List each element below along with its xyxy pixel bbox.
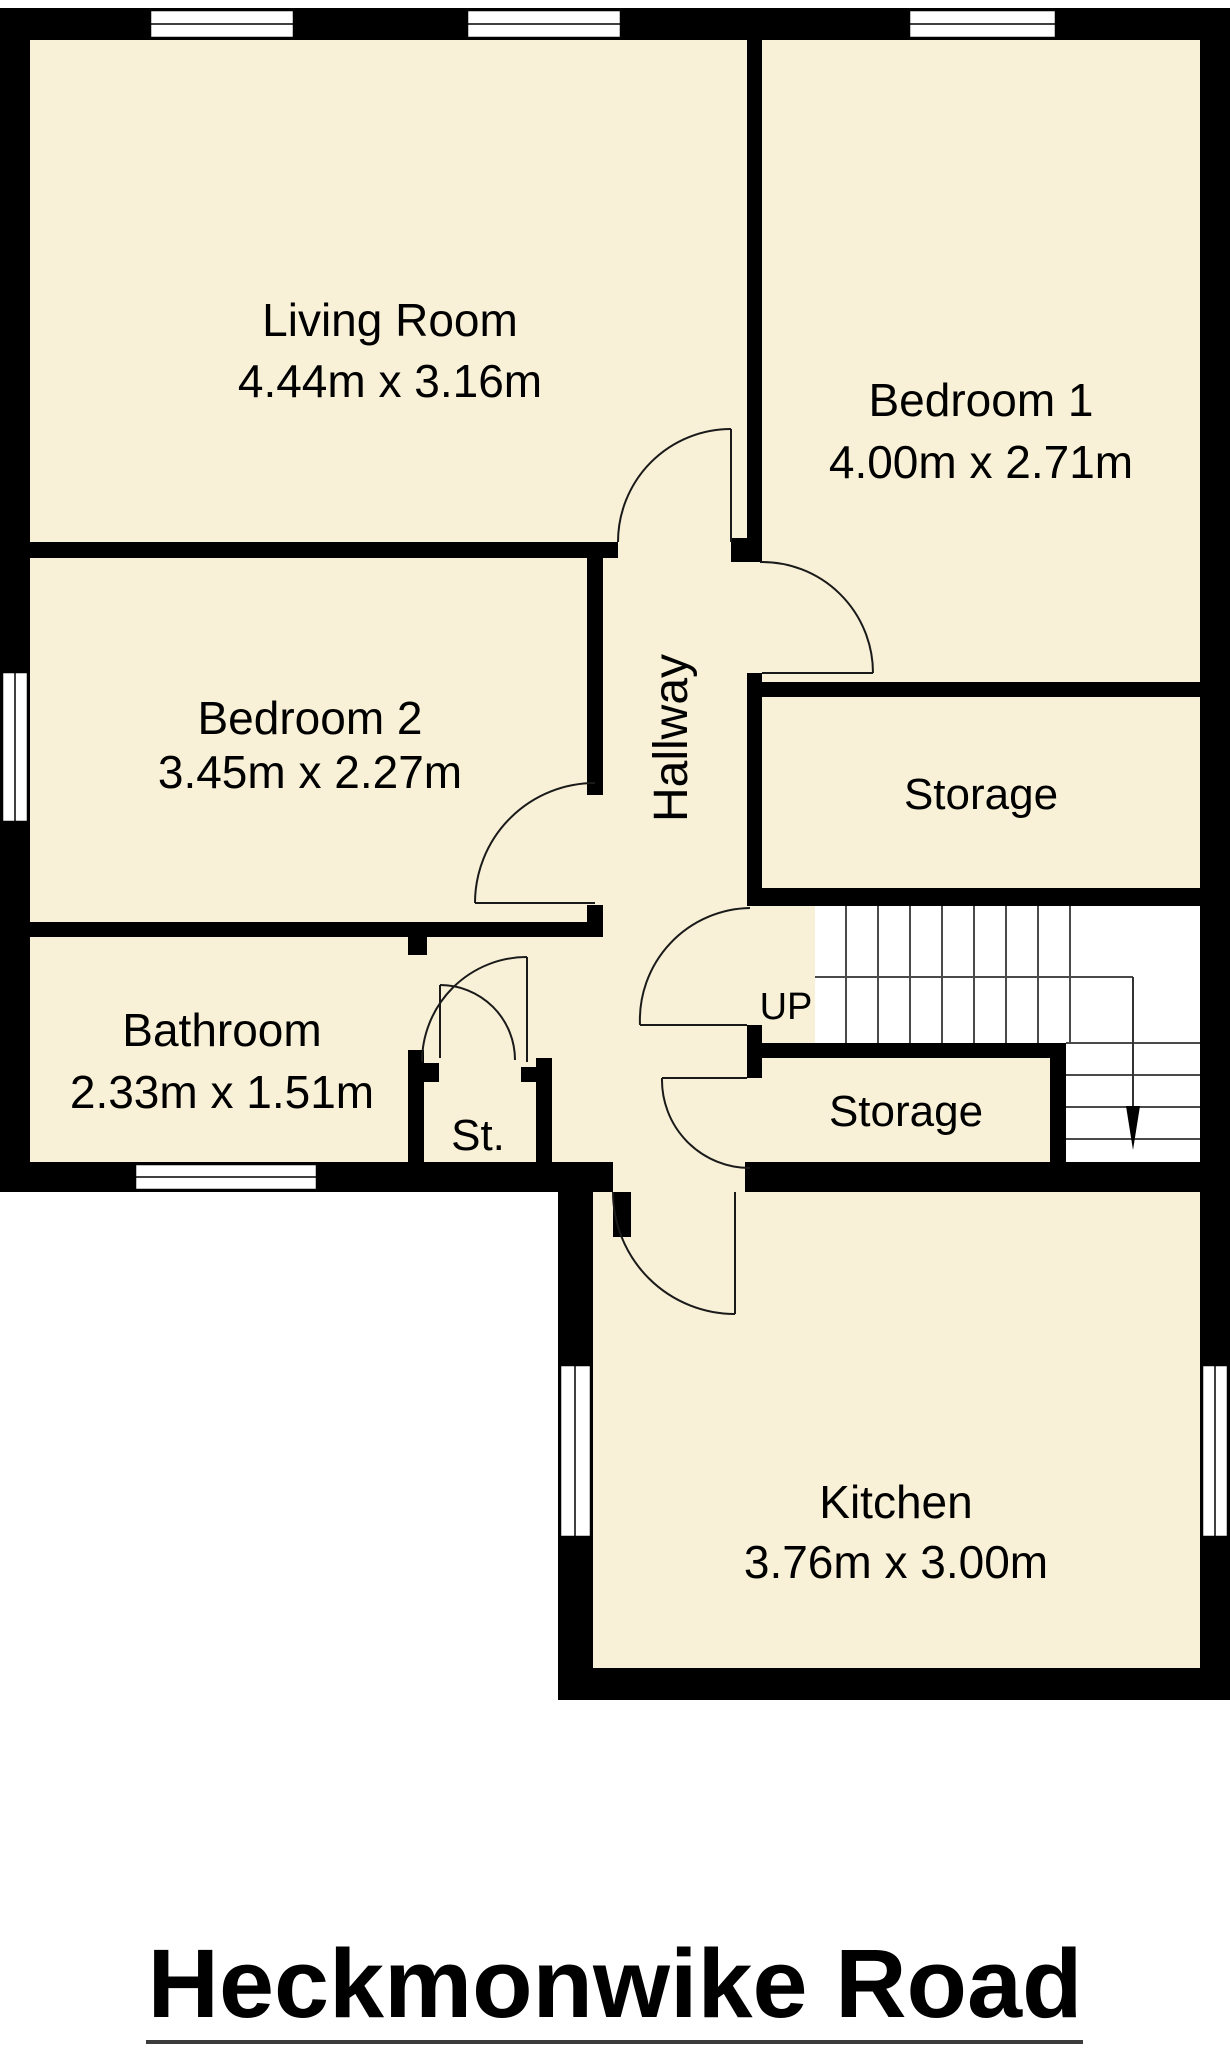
- bedroom-1-name: Bedroom 1: [868, 374, 1093, 426]
- hallway-name: Hallway: [645, 654, 698, 822]
- storage-upper-name: Storage: [904, 770, 1058, 819]
- window: [2, 672, 28, 822]
- floorplan-page: Living Room 4.44m x 3.16m Bedroom 1 4.00…: [0, 0, 1230, 2048]
- window: [909, 10, 1056, 38]
- cupboard-name: St.: [451, 1111, 505, 1160]
- kitchen-floor: [593, 1160, 1202, 1668]
- floorplan-drawing: Living Room 4.44m x 3.16m Bedroom 1 4.00…: [0, 0, 1230, 2048]
- window: [135, 1164, 317, 1190]
- living-room-dims: 4.44m x 3.16m: [238, 355, 542, 407]
- bathroom-name: Bathroom: [122, 1004, 321, 1056]
- window: [467, 10, 621, 38]
- window: [1202, 1365, 1228, 1537]
- bedroom-2-dims: 3.45m x 2.27m: [158, 746, 462, 798]
- kitchen-name: Kitchen: [819, 1476, 972, 1528]
- bedroom-1-dims: 4.00m x 2.71m: [829, 436, 1133, 488]
- title-underline: [146, 2040, 1083, 2044]
- stairs-direction-label: UP: [760, 986, 813, 1028]
- kitchen-dims: 3.76m x 3.00m: [744, 1536, 1048, 1588]
- living-room-name: Living Room: [262, 294, 518, 346]
- window: [560, 1365, 591, 1537]
- window: [150, 10, 294, 38]
- storage-lower-name: Storage: [829, 1087, 983, 1136]
- bedroom-2-name: Bedroom 2: [197, 692, 422, 744]
- bathroom-dims: 2.33m x 1.51m: [70, 1066, 374, 1118]
- plan-title: Heckmonwike Road: [148, 1929, 1083, 2038]
- title-block: Heckmonwike Road: [146, 1929, 1083, 2044]
